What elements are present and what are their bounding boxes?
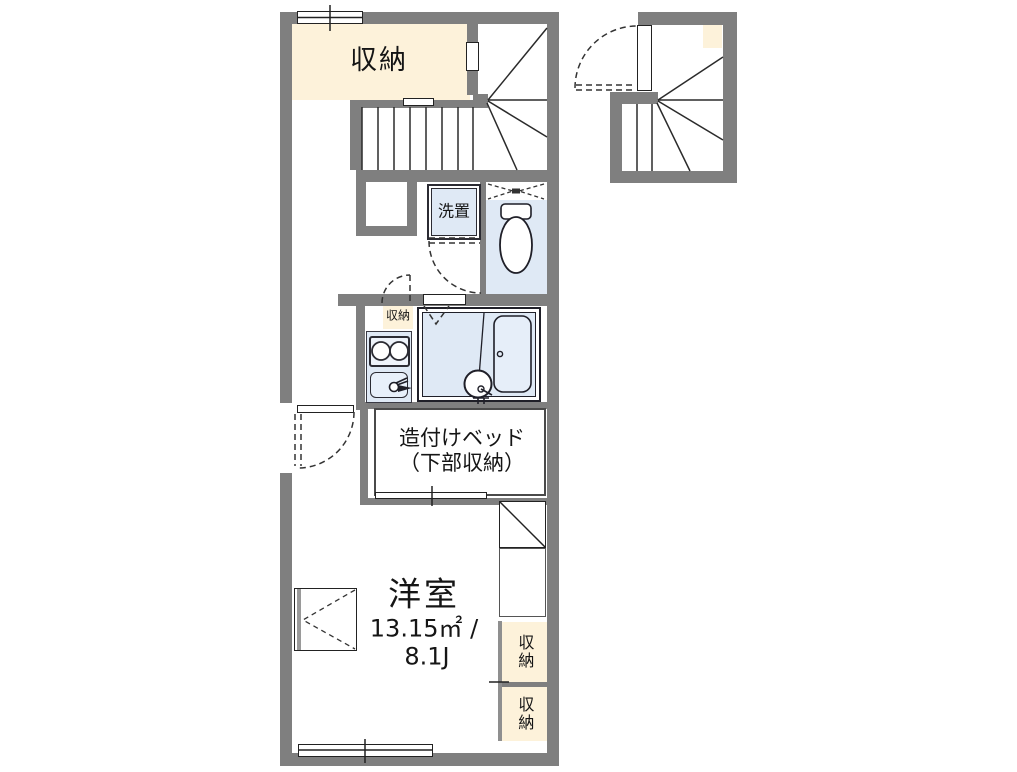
room-area-label: 13.15㎡ / <box>370 616 478 641</box>
toilet-icon <box>500 204 532 273</box>
toilet-vent <box>488 184 544 199</box>
closet-lower-label: 収納 <box>516 696 533 732</box>
door-swings <box>295 26 637 468</box>
washbasin-icon <box>465 371 493 405</box>
window-left-swing <box>303 590 355 649</box>
floorplan-canvas: 収納 洗置 収納 造付けベッド （下部収納） 洋室 13.15㎡ / 8.1J … <box>0 0 1017 772</box>
washer-label: 洗置 <box>438 204 470 221</box>
stairs-secondary <box>637 57 723 171</box>
faucet-icon <box>390 378 413 392</box>
bed-label-line2: （下部収納） <box>399 452 525 474</box>
bed-label-line1: 造付けベッド <box>399 427 525 449</box>
small-storage-label: 収納 <box>386 310 410 323</box>
room-size-label: 8.1J <box>404 644 449 669</box>
storage-room-label: 収納 <box>350 47 408 75</box>
floorplan-linework <box>0 0 1017 772</box>
room-name-label: 洋室 <box>388 578 460 613</box>
stove-burners-icon <box>372 342 408 360</box>
closet-upper-label: 収納 <box>516 634 533 670</box>
